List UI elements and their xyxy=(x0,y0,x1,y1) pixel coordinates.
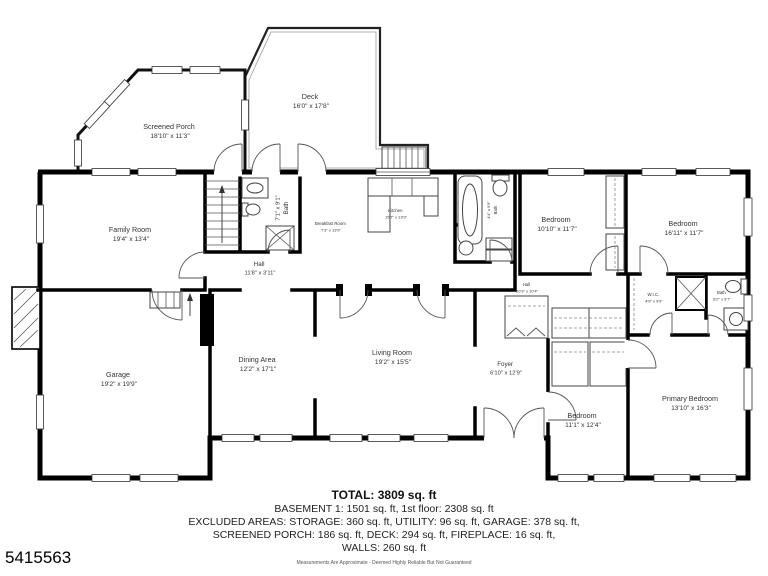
summary-porch-deck: SCREENED PORCH: 186 sq. ft, DECK: 294 sq… xyxy=(0,529,768,542)
bathtub-icon xyxy=(458,176,482,244)
room-label-bath2-dims: 4'4" x 9'9" xyxy=(486,201,491,219)
summary-total: TOTAL: 3809 sq. ft xyxy=(0,488,768,502)
summary-walls: WALLS: 260 sq. ft xyxy=(0,542,768,555)
room-label-bath2: Bath xyxy=(493,205,498,214)
vanity-icon xyxy=(242,178,268,198)
room-label-bath1-dims: 7'1" x 9'1" xyxy=(276,195,282,220)
area-summary: TOTAL: 3809 sq. ft BASEMENT 1: 1501 sq. … xyxy=(0,488,768,571)
deck-structure xyxy=(245,28,428,172)
room-label-bath1: Bath xyxy=(283,201,290,214)
wall-pillar xyxy=(200,294,214,346)
fireplace-icon xyxy=(12,287,40,349)
summary-basement: BASEMENT 1: 1501 sq. ft, 1st floor: 2308… xyxy=(0,503,768,516)
summary-disclaimer: Measurements Are Approximate - Deemed Hi… xyxy=(0,560,768,566)
sink-icon xyxy=(459,241,473,255)
toilet-icon xyxy=(726,281,741,293)
summary-excluded: EXCLUDED AREAS: STORAGE: 360 sq. ft, UTI… xyxy=(0,516,768,529)
toilet-icon xyxy=(246,204,260,215)
toilet-tank-icon xyxy=(741,279,747,294)
toilet-icon xyxy=(493,180,507,196)
screened-porch-structure xyxy=(75,67,249,173)
listing-id: 5415563 xyxy=(5,548,71,568)
